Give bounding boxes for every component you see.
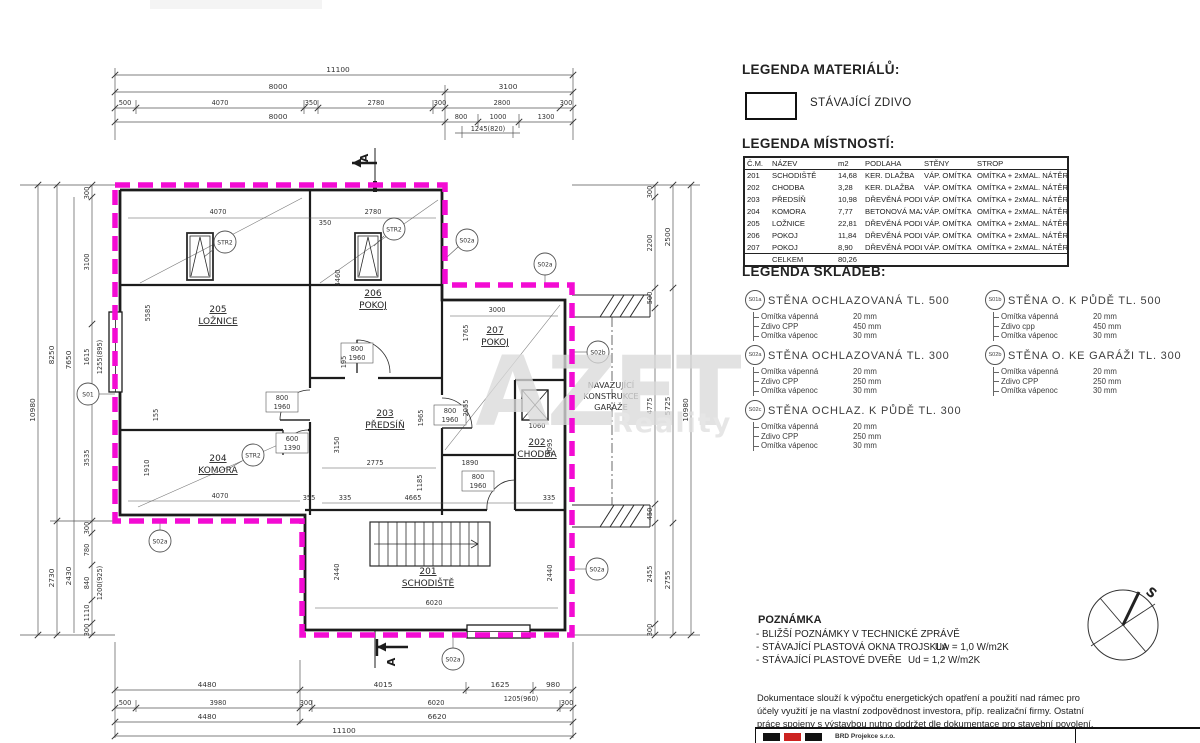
svg-text:1200(925): 1200(925) <box>96 566 104 601</box>
logo-mark <box>784 733 801 741</box>
svg-text:3100: 3100 <box>83 254 91 271</box>
svg-text:4665: 4665 <box>405 494 422 502</box>
cell: 11,84 <box>836 230 863 242</box>
col-header: m2 <box>836 157 863 170</box>
cell: 204 <box>744 206 770 218</box>
svg-text:207: 207 <box>486 326 503 336</box>
assembly-code-badge: S01a <box>745 290 765 310</box>
table-row: 203PŘEDSÍŇ10,98DŘEVĚNÁ PODLAVÁP. OMÍTKAO… <box>744 194 1068 206</box>
svg-text:6620: 6620 <box>428 712 447 721</box>
svg-text:11100: 11100 <box>326 65 350 74</box>
staircase <box>370 522 490 566</box>
title-block: BRD Projekce s.r.o. <box>755 727 1200 743</box>
north-arrow-compass: S <box>1078 583 1178 668</box>
assembly-code-badge: S02c <box>745 400 765 420</box>
svg-text:300: 300 <box>83 522 91 535</box>
svg-text:800: 800 <box>444 407 457 415</box>
svg-text:1965: 1965 <box>417 410 425 427</box>
svg-text:A: A <box>385 657 398 666</box>
cell: POKOJ <box>770 230 836 242</box>
svg-text:2500: 2500 <box>663 227 672 246</box>
svg-text:2440: 2440 <box>333 564 341 581</box>
svg-text:3100: 3100 <box>499 82 518 91</box>
assembly-item: S02bSTĚNA O. KE GARÁŽI TL. 300 Omítka vá… <box>985 345 1200 396</box>
svg-text:4070: 4070 <box>210 208 227 216</box>
col-header: PODLAHA <box>863 157 922 170</box>
cell: KER. DLAŽBA <box>863 182 922 194</box>
cell: VÁP. OMÍTKA <box>922 218 975 230</box>
svg-text:800: 800 <box>351 345 364 353</box>
rooms-table: Č.M. NÁZEV m2 PODLAHA STĚNY STROP 201SCH… <box>743 156 1069 267</box>
cell: KER. DLAŽBA <box>863 170 922 182</box>
note-line: - BLIŽŠÍ POZNÁMKY V TECHNICKÉ ZPRÁVĚ <box>756 629 960 640</box>
svg-text:KOMORA: KOMORA <box>198 466 238 476</box>
note-value: Ud = 1,2 W/m2K <box>908 655 980 666</box>
svg-text:4070: 4070 <box>212 99 229 107</box>
cell: 22,81 <box>836 218 863 230</box>
cell <box>975 254 1068 267</box>
svg-text:1960: 1960 <box>349 354 366 362</box>
svg-text:1245(820): 1245(820) <box>471 125 506 133</box>
svg-text:3000: 3000 <box>489 306 506 314</box>
cell: 14,68 <box>836 170 863 182</box>
cell: 3,28 <box>836 182 863 194</box>
svg-text:335: 335 <box>543 494 556 502</box>
table-row: 204KOMORA7,77BETONOVÁ MAZ.VÁP. OMÍTKAOMÍ… <box>744 206 1068 218</box>
svg-text:840: 840 <box>83 577 91 590</box>
logo-mark <box>805 733 822 741</box>
svg-text:1625: 1625 <box>491 680 510 689</box>
svg-text:1960: 1960 <box>470 482 487 490</box>
note-value: Uw = 1,0 W/m2K <box>935 642 1009 653</box>
note-line: - STÁVAJÍCÍ PLASTOVÁ OKNA TROJSKLA <box>756 642 948 653</box>
svg-text:4460: 4460 <box>334 270 342 287</box>
cell: VÁP. OMÍTKA <box>922 170 975 182</box>
title-block-cell <box>755 729 1076 743</box>
svg-text:1185: 1185 <box>416 475 424 492</box>
cell: 207 <box>744 242 770 254</box>
svg-text:SCHODIŠTĚ: SCHODIŠTĚ <box>402 577 455 589</box>
svg-text:4480: 4480 <box>198 680 217 689</box>
cell: OMÍTKA + 2xMAL. NÁTĚR <box>975 182 1068 194</box>
svg-text:205: 205 <box>209 305 226 315</box>
cell: POKOJ <box>770 242 836 254</box>
table-row: 202CHODBA3,28KER. DLAŽBAVÁP. OMÍTKAOMÍTK… <box>744 182 1068 194</box>
table-row: 205LOŽNICE22,81DŘEVĚNÁ PODLAVÁP. OMÍTKAO… <box>744 218 1068 230</box>
svg-text:10980: 10980 <box>28 398 37 422</box>
svg-text:300: 300 <box>83 187 91 200</box>
svg-text:2455: 2455 <box>646 566 654 583</box>
svg-text:2055: 2055 <box>462 400 470 417</box>
svg-text:1960: 1960 <box>442 416 459 424</box>
svg-text:4070: 4070 <box>212 492 229 500</box>
assembly-code-badge: S02b <box>985 345 1005 365</box>
svg-text:2440: 2440 <box>546 565 554 582</box>
svg-text:8000: 8000 <box>269 82 288 91</box>
disclaimer-line: Dokumentace slouží k výpočtu energetický… <box>757 692 1093 705</box>
col-header: NÁZEV <box>770 157 836 170</box>
cell: PŘEDSÍŇ <box>770 194 836 206</box>
cell: BETONOVÁ MAZ. <box>863 206 922 218</box>
disclaimer: Dokumentace slouží k výpočtu energetický… <box>757 692 1093 731</box>
svg-text:S02a: S02a <box>459 238 474 245</box>
svg-text:6020: 6020 <box>426 599 443 607</box>
svg-text:4015: 4015 <box>374 680 393 689</box>
svg-text:800: 800 <box>276 394 289 402</box>
svg-text:350: 350 <box>305 99 318 107</box>
cell: 206 <box>744 230 770 242</box>
cell: OMÍTKA + 2xMAL. NÁTĚR <box>975 230 1068 242</box>
material-swatch-label: STÁVAJÍCÍ ZDIVO <box>810 97 912 109</box>
svg-text:2800: 2800 <box>494 99 511 107</box>
logo-mark <box>763 733 780 741</box>
legend-materials-title: LEGENDA MATERIÁLŮ: <box>742 62 900 77</box>
cell: 7,77 <box>836 206 863 218</box>
svg-text:1765: 1765 <box>462 325 470 342</box>
svg-text:500: 500 <box>119 99 132 107</box>
svg-text:STR2: STR2 <box>245 453 261 460</box>
svg-text:300: 300 <box>560 99 573 107</box>
svg-text:11100: 11100 <box>332 726 356 735</box>
svg-text:8250: 8250 <box>47 345 56 364</box>
drawing-sheet: 11100 8000 3100 500 4070 350 2780 300 28… <box>0 0 1200 743</box>
svg-text:500: 500 <box>119 699 132 707</box>
cell: KOMORA <box>770 206 836 218</box>
svg-text:3535: 3535 <box>83 450 91 467</box>
cell <box>922 254 975 267</box>
svg-text:8000: 8000 <box>269 112 288 121</box>
cell: VÁP. OMÍTKA <box>922 182 975 194</box>
svg-text:600: 600 <box>286 435 299 443</box>
watermark: AZET Reality <box>476 336 741 448</box>
svg-text:1110: 1110 <box>83 605 91 622</box>
svg-text:2730: 2730 <box>47 568 56 587</box>
svg-text:2200: 2200 <box>646 235 654 252</box>
svg-text:300: 300 <box>561 699 574 707</box>
cell: DŘEVĚNÁ PODLA <box>863 242 922 254</box>
svg-text:CHODBA: CHODBA <box>517 450 557 460</box>
svg-text:S02a: S02a <box>445 657 460 664</box>
cell: CHODBA <box>770 182 836 194</box>
col-header: STĚNY <box>922 157 975 170</box>
svg-text:6020: 6020 <box>428 699 445 707</box>
cell: DŘEVĚNÁ PODLA <box>863 230 922 242</box>
assembly-name: STĚNA OCHLAZOVANÁ TL. 300 <box>768 350 950 362</box>
legend-rooms-title: LEGENDA MÍSTNOSTÍ: <box>742 136 895 151</box>
col-header: Č.M. <box>744 157 770 170</box>
svg-text:2755: 2755 <box>663 570 672 589</box>
cell: OMÍTKA + 2xMAL. NÁTĚR <box>975 170 1068 182</box>
svg-text:800: 800 <box>455 113 468 121</box>
table-row: 207POKOJ8,90DŘEVĚNÁ PODLAVÁP. OMÍTKAOMÍT… <box>744 242 1068 254</box>
assembly-item: S01aSTĚNA OCHLAZOVANÁ TL. 500 Omítka váp… <box>745 290 983 341</box>
svg-text:POKOJ: POKOJ <box>359 301 387 311</box>
dim-labels-bottom: 4480 4015 1625 980 500 3980 300 6020 120… <box>119 680 574 735</box>
cell: 203 <box>744 194 770 206</box>
table-header: Č.M. NÁZEV m2 PODLAHA STĚNY STROP <box>744 157 1068 170</box>
svg-text:STR2: STR2 <box>217 240 233 247</box>
assembly-name: STĚNA O. KE GARÁŽI TL. 300 <box>1008 350 1181 362</box>
cell: 8,90 <box>836 242 863 254</box>
svg-text:STR2: STR2 <box>386 227 402 234</box>
assembly-name: STĚNA O. K PŮDĚ TL. 500 <box>1008 295 1161 307</box>
svg-text:2775: 2775 <box>367 459 384 467</box>
cell: OMÍTKA + 2xMAL. NÁTĚR <box>975 218 1068 230</box>
svg-text:300: 300 <box>646 624 654 637</box>
assembly-name: STĚNA OCHLAZOVANÁ TL. 500 <box>768 295 950 307</box>
svg-text:LOŽNICE: LOŽNICE <box>198 315 238 327</box>
svg-text:S02a: S02a <box>152 539 167 546</box>
svg-text:206: 206 <box>364 289 381 299</box>
svg-text:3150: 3150 <box>333 437 341 454</box>
svg-text:1300: 1300 <box>538 113 555 121</box>
svg-text:204: 204 <box>209 454 226 464</box>
svg-text:155: 155 <box>152 409 160 422</box>
dim-chain-bottom <box>112 642 576 739</box>
svg-text:1390: 1390 <box>284 444 301 452</box>
svg-text:203: 203 <box>376 409 393 419</box>
svg-text:S02a: S02a <box>537 262 552 269</box>
assembly-item: S02cSTĚNA OCHLAZ. K PŮDĚ TL. 300 Omítka … <box>745 400 983 451</box>
floor-plan: 11100 8000 3100 500 4070 350 2780 300 28… <box>0 0 745 743</box>
cell: DŘEVĚNÁ PODLA <box>863 218 922 230</box>
note-line: - STÁVAJÍCÍ PLASTOVÉ DVEŘE <box>756 655 902 666</box>
legend-assemblies-title: LEGENDA SKLADEB: <box>742 264 886 279</box>
cell: 10,98 <box>836 194 863 206</box>
cell: 201 <box>744 170 770 182</box>
svg-text:300: 300 <box>83 624 91 637</box>
cell: 202 <box>744 182 770 194</box>
cell: OMÍTKA + 2xMAL. NÁTĚR <box>975 242 1068 254</box>
svg-text:1910: 1910 <box>143 460 151 477</box>
cell: LOŽNICE <box>770 218 836 230</box>
svg-text:300: 300 <box>300 699 313 707</box>
cell: VÁP. OMÍTKA <box>922 194 975 206</box>
svg-text:355: 355 <box>303 494 316 502</box>
svg-text:1615: 1615 <box>83 349 91 366</box>
table-row: 206POKOJ11,84DŘEVĚNÁ PODLAVÁP. OMÍTKAOMÍ… <box>744 230 1068 242</box>
svg-text:980: 980 <box>546 680 560 689</box>
svg-text:1890: 1890 <box>462 459 479 467</box>
svg-text:1000: 1000 <box>490 113 507 121</box>
svg-text:201: 201 <box>419 567 436 577</box>
roof-window <box>355 233 381 280</box>
material-swatch <box>745 92 797 120</box>
svg-text:195: 195 <box>340 356 348 369</box>
svg-text:350: 350 <box>319 219 332 227</box>
cell: OMÍTKA + 2xMAL. NÁTĚR <box>975 206 1068 218</box>
table-row: 201SCHODIŠTĚ14,68KER. DLAŽBAVÁP. OMÍTKAO… <box>744 170 1068 182</box>
svg-text:800: 800 <box>472 473 485 481</box>
assembly-item: S02aSTĚNA OCHLAZOVANÁ TL. 300 Omítka váp… <box>745 345 983 396</box>
company-name: BRD Projekce s.r.o. <box>835 733 895 740</box>
svg-text:2780: 2780 <box>365 208 382 216</box>
cell: VÁP. OMÍTKA <box>922 230 975 242</box>
svg-text:7650: 7650 <box>64 350 73 369</box>
assembly-name: STĚNA OCHLAZ. K PŮDĚ TL. 300 <box>768 405 961 417</box>
svg-text:4480: 4480 <box>198 712 217 721</box>
compass-label: S <box>1142 585 1159 603</box>
cell: OMÍTKA + 2xMAL. NÁTĚR <box>975 194 1068 206</box>
svg-text:A: A <box>358 153 371 162</box>
assembly-code-badge: S02a <box>745 345 765 365</box>
svg-text:300: 300 <box>646 186 654 199</box>
svg-text:335: 335 <box>339 494 352 502</box>
svg-text:Reality: Reality <box>612 408 732 439</box>
note-title: POZNÁMKA <box>758 614 822 626</box>
svg-text:S02a: S02a <box>589 567 604 574</box>
svg-text:2430: 2430 <box>64 566 73 585</box>
assembly-code-badge: S01b <box>985 290 1005 310</box>
svg-text:1960: 1960 <box>274 403 291 411</box>
cell: 205 <box>744 218 770 230</box>
cell: DŘEVĚNÁ PODLA <box>863 194 922 206</box>
svg-text:5585: 5585 <box>144 305 152 322</box>
cell: SCHODIŠTĚ <box>770 170 836 182</box>
disclaimer-line: účely využití je na vlastní zodpovědnost… <box>757 705 1093 718</box>
svg-text:1255(895): 1255(895) <box>96 340 104 375</box>
svg-text:1205(960): 1205(960) <box>504 695 539 703</box>
svg-text:2780: 2780 <box>368 99 385 107</box>
svg-text:S01: S01 <box>82 392 94 399</box>
svg-text:780: 780 <box>83 544 91 557</box>
svg-text:3980: 3980 <box>210 699 227 707</box>
cell: VÁP. OMÍTKA <box>922 242 975 254</box>
cell: VÁP. OMÍTKA <box>922 206 975 218</box>
svg-text:300: 300 <box>434 99 447 107</box>
col-header: STROP <box>975 157 1068 170</box>
assembly-item: S01bSTĚNA O. K PŮDĚ TL. 500 Omítka vápen… <box>985 290 1200 341</box>
title-block-cell <box>1075 729 1200 743</box>
dim-labels-left: 300 3100 1615 1255(895) 3535 300 780 840… <box>28 187 104 637</box>
svg-text:PŘEDSÍŇ: PŘEDSÍŇ <box>365 419 404 431</box>
